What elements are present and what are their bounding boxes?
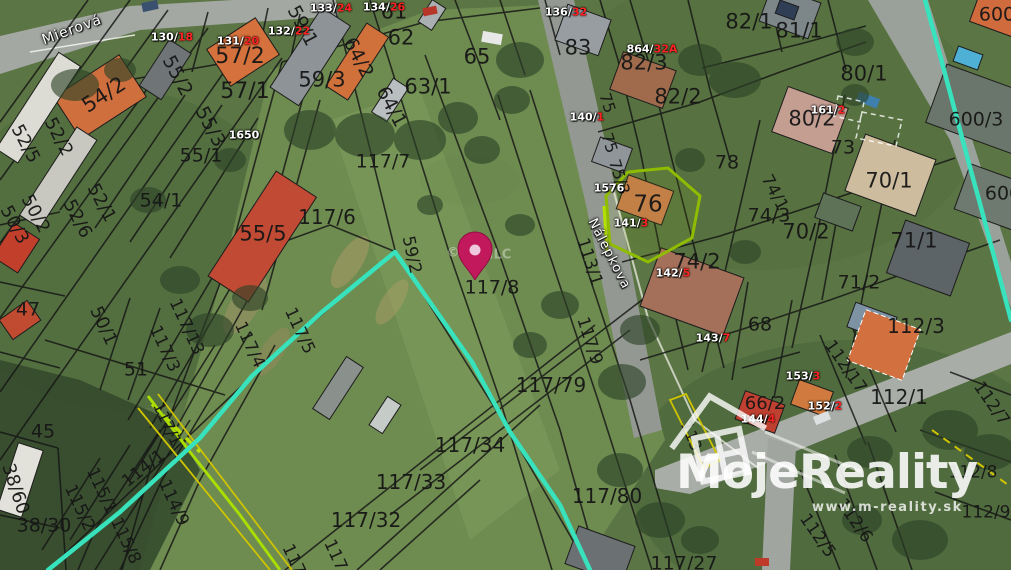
- parcel-label: 65: [464, 47, 491, 68]
- parcel-label: 112/3: [887, 316, 945, 336]
- parcel-label: 50/1: [86, 304, 119, 348]
- parcel-label: 82/1: [725, 12, 772, 33]
- parcel-label: 55/2: [159, 53, 196, 100]
- house-number-label: 136/32: [545, 7, 587, 18]
- parcel-label: 112/9: [962, 505, 1011, 522]
- parcel-label: 600/3: [949, 111, 1004, 130]
- house-number-label: 130/18: [151, 32, 193, 43]
- watermark-url: www.m-reality.sk: [812, 501, 963, 514]
- house-number-label: 152/2: [808, 401, 843, 412]
- parcel-label: 117/34: [435, 435, 505, 455]
- parcel-label: 78: [715, 154, 739, 173]
- parcel-label: 52/2: [41, 115, 76, 159]
- parcel-label: 117/4: [231, 319, 267, 371]
- parcel-label: 59/2: [399, 235, 424, 276]
- parcel-label: 117/9: [573, 315, 604, 367]
- parcel-label: 52/5: [8, 122, 43, 166]
- cadastral-map[interactable]: 54/257/257/155/255/355/155/554/152/252/5…: [0, 0, 1011, 570]
- parcel-label: 54/2: [79, 73, 130, 116]
- house-number-label: 132/22: [268, 26, 310, 37]
- parcel-label: 112/1: [870, 387, 928, 407]
- parcel-label: 82/2: [654, 87, 701, 108]
- parcel-label: 71/1: [890, 231, 937, 252]
- house-number-label: 1650: [229, 130, 260, 141]
- watermark-brand: MojeReality: [676, 449, 977, 496]
- parcel-label: 117/5: [281, 305, 317, 357]
- parcel-label: 112/7: [970, 379, 1011, 429]
- house-number-label: 140/1: [570, 112, 605, 123]
- parcel-label: 38/30: [17, 517, 72, 536]
- house-number-label: 153/3: [786, 371, 821, 382]
- parcel-label: 70/2: [782, 222, 829, 243]
- street-label: Mierová: [40, 13, 103, 48]
- parcel-label: 68: [748, 316, 772, 335]
- parcel-label: 47: [16, 301, 40, 320]
- parcel-label: 55/3: [192, 104, 229, 151]
- parcel-label: 75: [598, 131, 620, 155]
- house-number-label: 864/32A: [627, 44, 678, 55]
- parcel-label: 57/2: [215, 46, 264, 68]
- house-number-label: 142/5: [656, 268, 691, 279]
- parcel-label: 117/8: [465, 279, 520, 298]
- parcel-label: 76: [633, 194, 662, 217]
- house-number-label: 141/3: [614, 218, 649, 229]
- parcel-label: 114/9: [155, 477, 191, 529]
- house-number-label: 1576: [594, 183, 625, 194]
- parcel-label: 117/32: [331, 510, 401, 530]
- house-number-label: 143/7: [696, 333, 731, 344]
- parcel-label: 71/2: [838, 274, 881, 293]
- parcel-label: 117/6: [298, 207, 356, 227]
- parcel-label: 51: [124, 361, 148, 380]
- parcel-label: 81/1: [775, 21, 822, 42]
- parcel-label: 117/27: [651, 555, 718, 570]
- parcel-label: 73: [831, 139, 855, 158]
- parcel-label: 83: [565, 38, 592, 59]
- parcel-label: 112/17: [821, 338, 869, 397]
- parcel-label: 600: [985, 185, 1011, 204]
- parcel-label: 117: [278, 542, 307, 570]
- parcel-label: 117/1: [150, 400, 184, 449]
- parcel-label: 117/80: [572, 486, 642, 506]
- parcel-label: 70/1: [865, 171, 912, 192]
- parcel-label: 112/5: [796, 511, 838, 561]
- parcel-label: 600: [979, 6, 1011, 25]
- parcel-label: 117/: [320, 537, 352, 570]
- location-pin-icon[interactable]: [453, 228, 497, 280]
- parcel-label: 57/1: [220, 81, 269, 103]
- parcel-label: 55/5: [239, 224, 286, 245]
- house-number-label: 134/26: [363, 2, 405, 13]
- house-number-label: 161/2: [811, 105, 846, 116]
- parcel-label: 45: [31, 423, 55, 442]
- house-number-label: 131/20: [217, 36, 259, 47]
- parcel-label: 62: [388, 28, 415, 49]
- parcel-label: 82/3: [620, 53, 667, 74]
- parcel-label: 54/1: [140, 192, 183, 211]
- parcel-label: 55/1: [180, 147, 223, 166]
- parcel-label: 59/3: [298, 70, 345, 91]
- parcel-label: 80/1: [840, 64, 887, 85]
- parcel-label: 117/79: [516, 375, 586, 395]
- house-number-label: 133/24: [310, 3, 352, 14]
- parcel-label: 117/7: [356, 153, 411, 172]
- parcel-label: 38/60: [0, 462, 32, 517]
- parcel-label: 117/33: [376, 472, 446, 492]
- parcel-label: 115/8: [107, 515, 143, 567]
- parcel-label: 63/1: [404, 77, 451, 98]
